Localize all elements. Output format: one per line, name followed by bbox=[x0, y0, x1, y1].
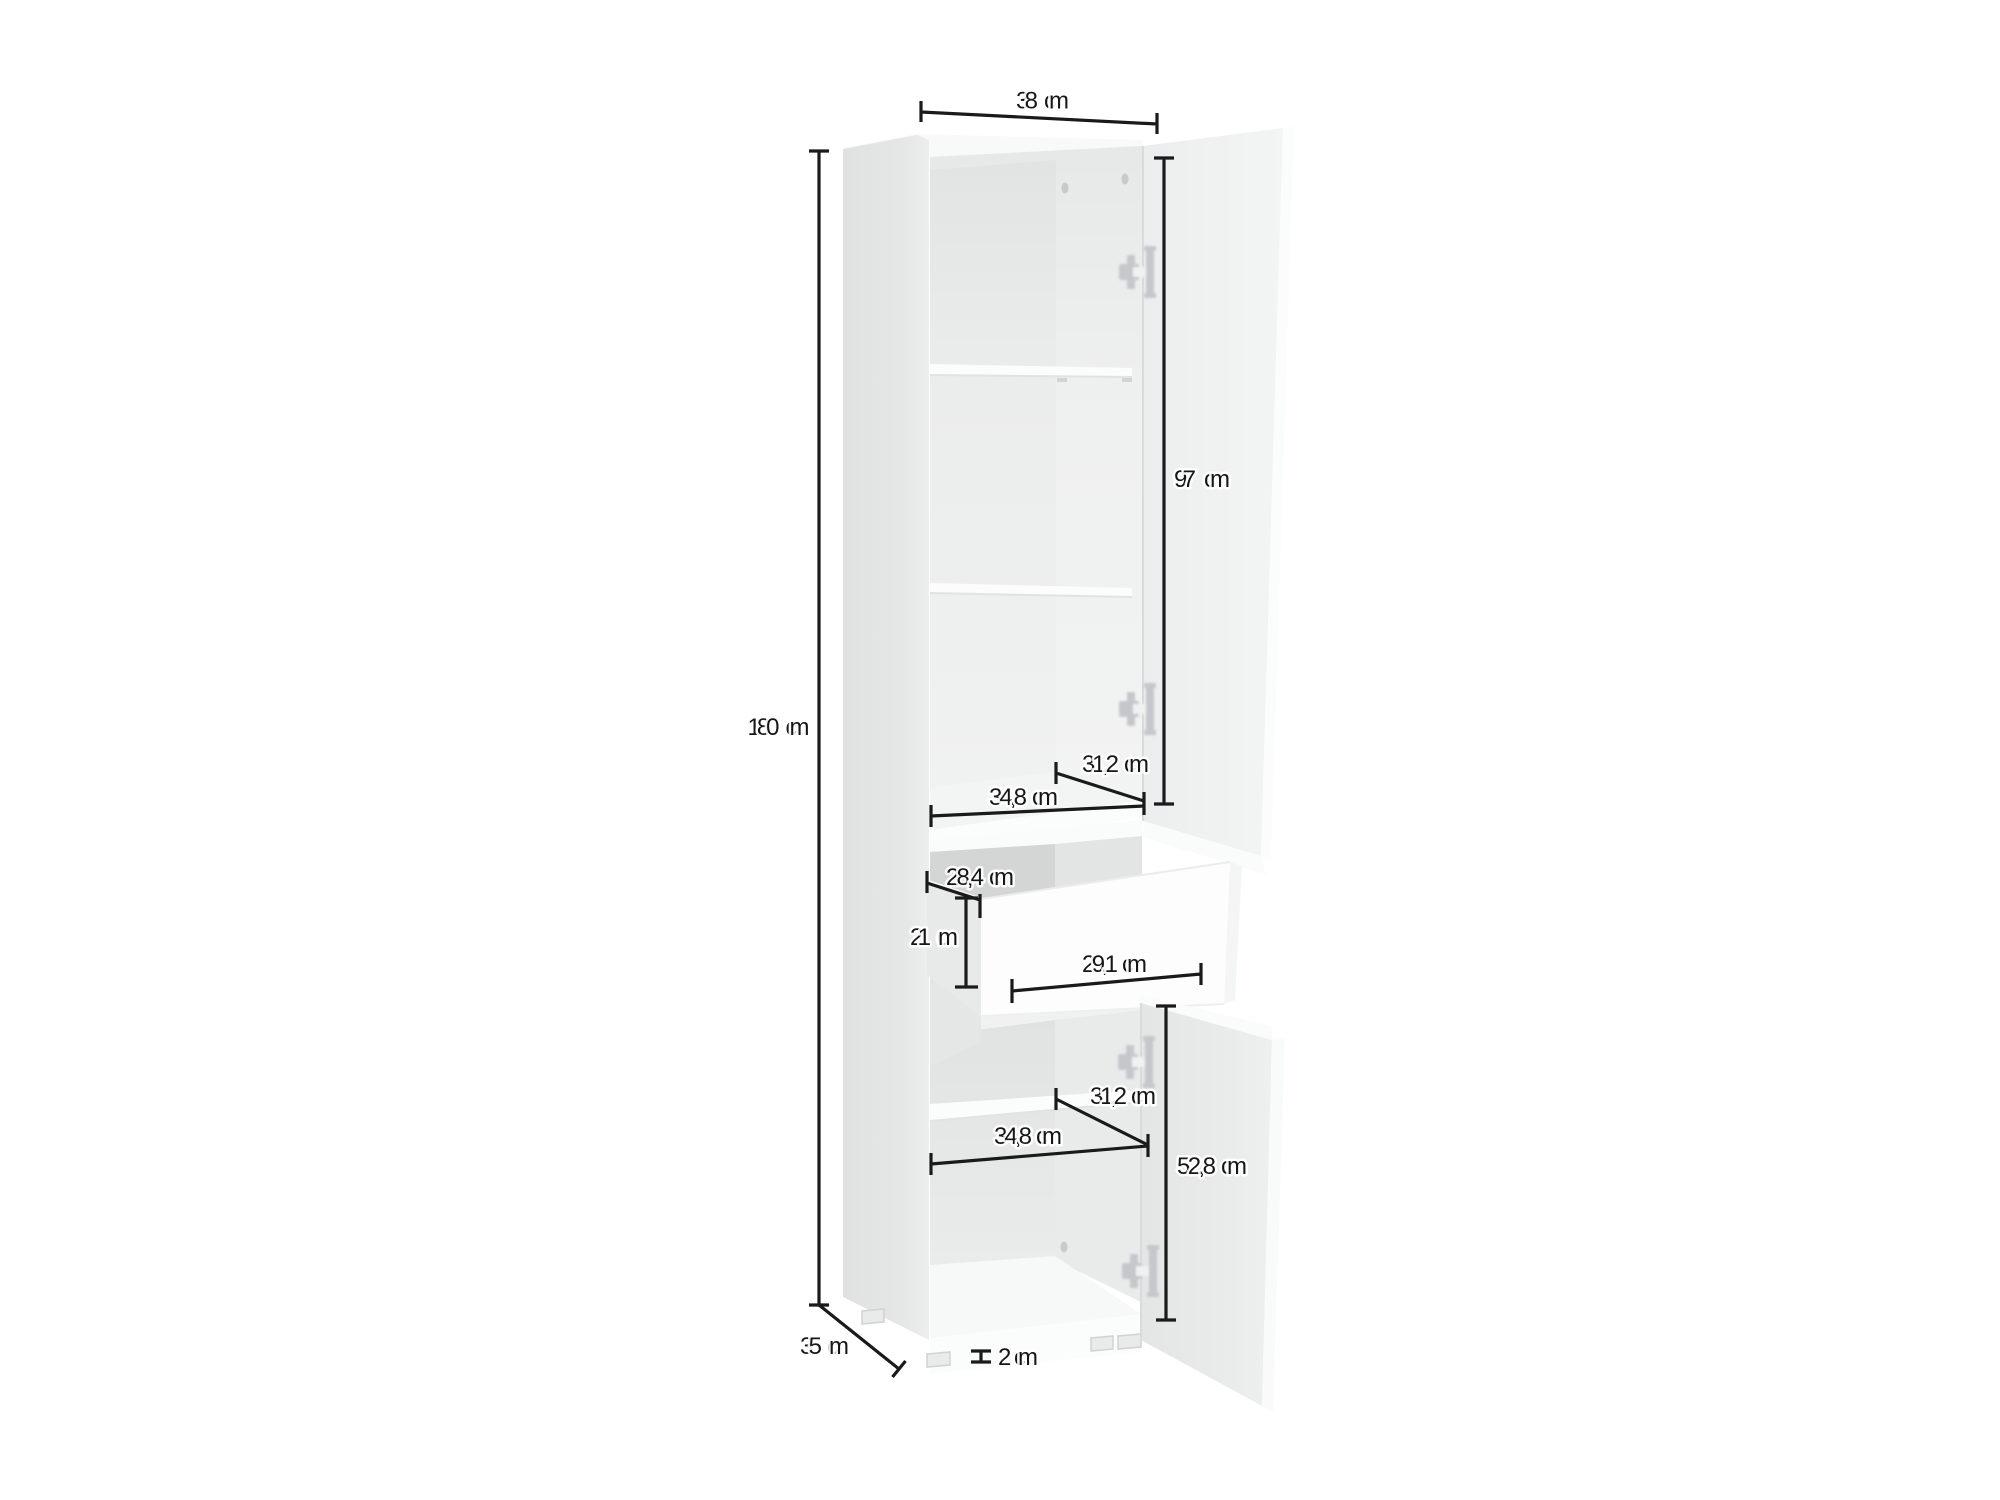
svg-text:cm: cm bbox=[937, 924, 958, 951]
svg-text:cm: cm bbox=[1044, 88, 1069, 115]
svg-text:180: 180 bbox=[748, 714, 780, 741]
svg-text:34,8: 34,8 bbox=[989, 784, 1027, 811]
svg-text:29,1: 29,1 bbox=[1082, 951, 1118, 978]
svg-text:34,8: 34,8 bbox=[994, 1123, 1032, 1150]
svg-text:52,8: 52,8 bbox=[1177, 1153, 1216, 1180]
svg-text:cm: cm bbox=[1131, 1083, 1156, 1110]
svg-text:cm: cm bbox=[989, 864, 1014, 891]
svg-text:cm: cm bbox=[1036, 1123, 1062, 1150]
svg-text:28,4: 28,4 bbox=[946, 864, 984, 891]
svg-text:97: 97 bbox=[1174, 466, 1196, 493]
svg-text:38: 38 bbox=[1016, 88, 1038, 115]
svg-text:cm: cm bbox=[1014, 1344, 1038, 1371]
svg-text:35: 35 bbox=[800, 1333, 822, 1360]
svg-text:cm: cm bbox=[1221, 1153, 1247, 1180]
svg-text:cm: cm bbox=[786, 714, 810, 741]
svg-text:2: 2 bbox=[998, 1344, 1011, 1371]
svg-text:31,2: 31,2 bbox=[1090, 1083, 1127, 1110]
svg-text:cm: cm bbox=[1204, 466, 1230, 493]
svg-text:cm: cm bbox=[1122, 951, 1147, 978]
svg-text:21: 21 bbox=[910, 924, 931, 951]
svg-text:cm: cm bbox=[1124, 751, 1149, 778]
svg-text:cm: cm bbox=[827, 1333, 849, 1360]
svg-text:cm: cm bbox=[1032, 784, 1058, 811]
svg-text:31,2: 31,2 bbox=[1082, 751, 1119, 778]
